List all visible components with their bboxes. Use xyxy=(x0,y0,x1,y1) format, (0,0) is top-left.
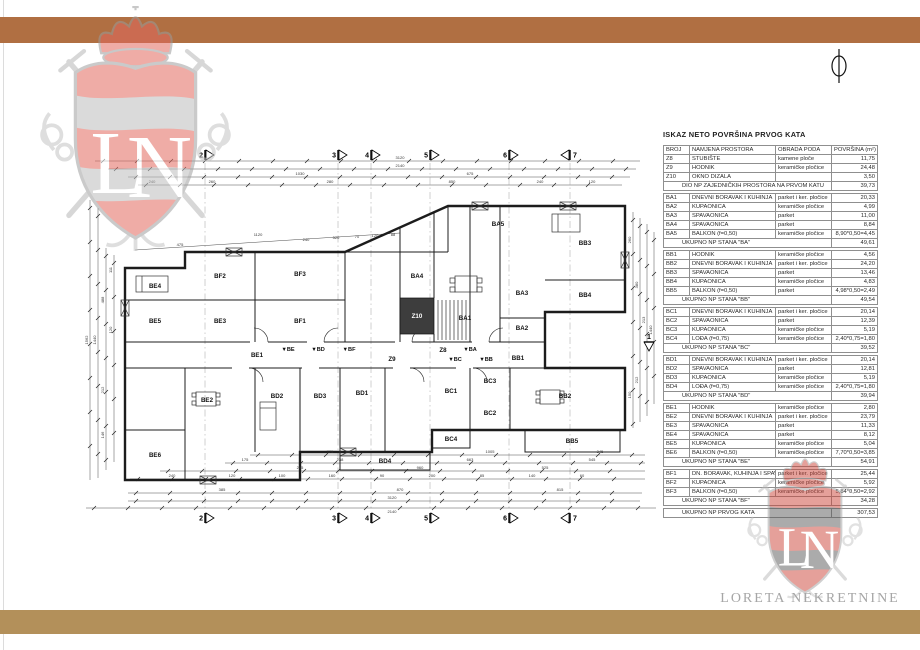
table-row: BA4SPAVAONICAparket8,84 xyxy=(664,221,878,230)
room-purpose: BALKON (f=0,50) xyxy=(690,230,776,239)
floor-finish: keramičke pločice xyxy=(776,335,832,344)
area-table: BROJNAMJENA PROSTORAOBRADA PODAPOVRŠINA … xyxy=(663,145,879,518)
room-purpose: DNEVNI BORAVAK I KUHINJA xyxy=(690,308,776,317)
total-label: UKUPNO NP PRVOG KATA xyxy=(664,509,832,518)
table-row: BE3SPAVAONICAparket11,33 xyxy=(664,422,878,431)
floor-finish: keramičke pločice xyxy=(776,449,832,458)
room-label-be5: BE5 xyxy=(149,318,162,325)
floor-finish: keramičke pločice xyxy=(776,488,832,497)
summary-value: 39,94 xyxy=(832,392,878,401)
dimension-label: 475 xyxy=(177,242,184,247)
room-area: 24,48 xyxy=(832,164,878,173)
table-row: Z9HODNIKkeramičke pločice24,48 xyxy=(664,164,878,173)
room-purpose: HODNIK xyxy=(690,164,776,173)
grid-marker: 5 xyxy=(424,513,439,523)
dimension-label: 140 xyxy=(529,473,536,478)
room-purpose: BALKON (f=0,50) xyxy=(690,449,776,458)
room-purpose: DNEVNI BORAVAK I KUHINJA xyxy=(690,356,776,365)
room-purpose: SPAVAONICA xyxy=(690,269,776,278)
room-code: BD2 xyxy=(664,365,690,374)
area-table-group: UKUPNO NP PRVOG KATA307,53 xyxy=(663,508,878,518)
room-area: 5,92 xyxy=(832,479,878,488)
table-row: BB4KUPAONICAkeramičke pločice4,83 xyxy=(664,278,878,287)
dimension-label: 85 xyxy=(480,473,485,478)
room-purpose: DNEVNI BORAVAK I KUHINJA xyxy=(690,260,776,269)
room-label-bc2: BC2 xyxy=(484,410,497,417)
grid-marker-label: 2 xyxy=(199,153,203,160)
dimension-label: 240 xyxy=(303,237,310,242)
north-arrow-icon xyxy=(826,48,852,84)
total-value: 307,53 xyxy=(832,509,878,518)
floor-finish: parket xyxy=(776,221,832,230)
dimension-label: 100 xyxy=(279,473,286,478)
dimension-label: 111 xyxy=(108,266,113,273)
room-purpose: OKNO DIZALA xyxy=(690,173,776,182)
room-code: BB1 xyxy=(664,251,690,260)
room-area: 13,46 xyxy=(832,269,878,278)
room-label-be6: BE6 xyxy=(149,452,162,459)
grid-marker: 5 xyxy=(424,150,439,160)
room-purpose: SPAVAONICA xyxy=(690,212,776,221)
floor-finish: parket i ker. pločice xyxy=(776,470,832,479)
table-row: BB3SPAVAONICAparket13,46 xyxy=(664,269,878,278)
room-code: BA3 xyxy=(664,212,690,221)
room-purpose: DNEVNI BORAVAK I KUHINJA xyxy=(690,194,776,203)
floor-finish: parket xyxy=(776,317,832,326)
room-code: BB3 xyxy=(664,269,690,278)
floor-finish: parket xyxy=(776,212,832,221)
room-area: 23,79 xyxy=(832,413,878,422)
room-label-bf2: BF2 xyxy=(214,273,226,280)
room-label-bc3: BC3 xyxy=(484,378,497,385)
room-code: BE5 xyxy=(664,440,690,449)
area-table-section: ISKAZ NETO POVRŠINA PRVOG KATA BROJNAMJE… xyxy=(663,130,879,520)
room-label-bb3: BB3 xyxy=(579,240,592,247)
room-code: BA2 xyxy=(664,203,690,212)
area-table-group: BF1DN. BORAVAK, KUHINJA I SPAVAONICApark… xyxy=(663,469,878,506)
room-code: BF1 xyxy=(664,470,690,479)
dimension-label: 70 xyxy=(355,234,360,239)
room-area: 4,98*0,50=2,49 xyxy=(832,287,878,296)
floor-finish: parket i ker. pločice xyxy=(776,356,832,365)
room-code: BE1 xyxy=(664,404,690,413)
dimension-label: 295 xyxy=(297,465,304,470)
dimension-label: 488 xyxy=(100,296,105,303)
floor-finish: parket xyxy=(776,365,832,374)
table-row: BD1DNEVNI BORAVAK I KUHINJAparket i ker.… xyxy=(664,356,878,365)
dimension-label: 1030 xyxy=(296,171,306,176)
floor-finish: parket xyxy=(776,431,832,440)
floor-finish: parket i ker. pločice xyxy=(776,413,832,422)
column-header: BROJ xyxy=(664,146,690,155)
room-code: Z10 xyxy=(664,173,690,182)
room-area: 2,80 xyxy=(832,404,878,413)
dimension-label: 1120 xyxy=(254,232,263,237)
unit-entrance-label-bd: ▼BD xyxy=(311,347,325,353)
company-name: LORETA NEKRETNINE xyxy=(710,591,910,607)
grid-marker-label: 6 xyxy=(503,153,507,160)
dimension-label: 280 xyxy=(327,179,334,184)
dimension-label: 960 xyxy=(417,465,424,470)
table-row: Z10OKNO DIZALA3,50 xyxy=(664,173,878,182)
table-row: BF2KUPAONICAkeramičke pločice5,92 xyxy=(664,479,878,488)
grid-marker: 6 xyxy=(503,513,518,523)
dimension-label: 2140 xyxy=(396,163,406,168)
room-purpose: SPAVAONICA xyxy=(690,431,776,440)
room-code: BE2 xyxy=(664,413,690,422)
table-row: BE5KUPAONICAkeramičke pločice5,04 xyxy=(664,440,878,449)
area-table-group: BROJNAMJENA PROSTORAOBRADA PODAPOVRŠINA … xyxy=(663,145,878,191)
column-header: OBRADA PODA xyxy=(776,146,832,155)
room-code: BD1 xyxy=(664,356,690,365)
room-label-bc1: BC1 xyxy=(445,388,458,395)
room-label-z9: Z9 xyxy=(388,356,396,363)
table-row: BE4SPAVAONICAparket8,12 xyxy=(664,431,878,440)
dimension-label: 1440 xyxy=(92,335,97,345)
room-label-be4: BE4 xyxy=(149,283,162,290)
unit-entrance-label-bb: ▼BB xyxy=(479,357,493,363)
dimension-label: 1562 xyxy=(84,335,89,345)
room-area: 5,84*0,50=2,92 xyxy=(832,488,878,497)
room-code: BF2 xyxy=(664,479,690,488)
table-row: BC3KUPAONICAkeramičke pločice5,19 xyxy=(664,326,878,335)
room-label-bb4: BB4 xyxy=(579,292,592,299)
room-code: BE4 xyxy=(664,431,690,440)
dimension-label: 212 xyxy=(634,376,639,383)
dimension-label: 3120 xyxy=(396,155,406,160)
floor-finish: keramičke pločice xyxy=(776,251,832,260)
room-label-ba1: BA1 xyxy=(459,315,472,322)
dimension-label: 1005 xyxy=(486,449,496,454)
dimension-label: 675 xyxy=(467,171,474,176)
dimension-labels: 3120214010306752402602808502401204751120… xyxy=(84,155,653,514)
table-title: ISKAZ NETO POVRŠINA PRVOG KATA xyxy=(663,130,879,139)
floor-finish: keramičke pločice xyxy=(776,278,832,287)
room-code: BD3 xyxy=(664,374,690,383)
photo-edge-line xyxy=(3,0,4,650)
room-code: BD4 xyxy=(664,383,690,392)
room-area: 4,99 xyxy=(832,203,878,212)
grid-marker-label: 3 xyxy=(332,516,336,523)
floor-finish: parket i ker. pločice xyxy=(776,308,832,317)
unit-entrance-label-be: ▼BE xyxy=(281,347,295,353)
room-area: 11,33 xyxy=(832,422,878,431)
grid-marker: 3 xyxy=(332,513,347,523)
summary-label: UKUPNO NP STANA "BB" xyxy=(664,296,832,305)
summary-row: UKUPNO NP STANA "BF"34,28 xyxy=(664,497,878,506)
room-label-z8: Z8 xyxy=(439,347,447,354)
room-code: BC3 xyxy=(664,326,690,335)
dimension-label: 815 xyxy=(557,487,564,492)
room-label-ba5: BA5 xyxy=(492,221,505,228)
room-area: 4,83 xyxy=(832,278,878,287)
grid-marker: 4 xyxy=(365,513,380,523)
grid-marker: 7 xyxy=(561,150,577,160)
area-table-group: BD1DNEVNI BORAVAK I KUHINJAparket i ker.… xyxy=(663,355,878,401)
room-area: 8,12 xyxy=(832,431,878,440)
dimension-label: 240 xyxy=(149,179,156,184)
dimension-label: 240 xyxy=(169,473,176,478)
room-purpose: KUPAONICA xyxy=(690,374,776,383)
room-label-bb1: BB1 xyxy=(512,355,525,362)
room-code: BE3 xyxy=(664,422,690,431)
grid-marker-label: 6 xyxy=(503,516,507,523)
summary-value: 54,91 xyxy=(832,458,878,467)
grid-marker-label: 4 xyxy=(365,516,369,523)
grid-marker-label: 3 xyxy=(332,153,336,160)
room-label-bf3: BF3 xyxy=(294,271,306,278)
dimension-label: 160 xyxy=(329,473,336,478)
dimension-label: 775 xyxy=(327,449,334,454)
summary-value: 49,54 xyxy=(832,296,878,305)
summary-label: UKUPNO NP STANA "BD" xyxy=(664,392,832,401)
room-code: Z9 xyxy=(664,164,690,173)
room-area: 24,20 xyxy=(832,260,878,269)
room-purpose: BALKON (f=0,50) xyxy=(690,287,776,296)
building-walls xyxy=(125,206,625,480)
room-purpose: KUPAONICA xyxy=(690,326,776,335)
summary-value: 39,73 xyxy=(832,182,878,191)
summary-row: UKUPNO NP STANA "BB"49,54 xyxy=(664,296,878,305)
room-area: 20,14 xyxy=(832,308,878,317)
room-code: Z8 xyxy=(664,155,690,164)
room-code: BB4 xyxy=(664,278,690,287)
floor-finish: keramičke pločice xyxy=(776,164,832,173)
summary-label: UKUPNO NP STANA "BF" xyxy=(664,497,832,506)
table-row: BA3SPAVAONICAparket11,00 xyxy=(664,212,878,221)
room-label-be2: BE2 xyxy=(201,397,214,404)
room-purpose: HODNIK xyxy=(690,251,776,260)
table-row: BA5BALKON (f=0,50)keramičke pločice8,90*… xyxy=(664,230,878,239)
floor-finish: keramičke pločice xyxy=(776,326,832,335)
room-area: 11,00 xyxy=(832,212,878,221)
room-label-bd2: BD2 xyxy=(271,393,284,400)
grid-marker-label: 5 xyxy=(424,153,428,160)
room-area: 2,40*0,75=1,80 xyxy=(832,383,878,392)
table-row: BA2KUPAONICAkeramičke pločice4,99 xyxy=(664,203,878,212)
room-code: BA5 xyxy=(664,230,690,239)
table-row: BD3KUPAONICAkeramičke pločice5,19 xyxy=(664,374,878,383)
table-row: BD4LOĐA (f=0,75)keramičke pločice2,40*0,… xyxy=(664,383,878,392)
grid-marker-label: 7 xyxy=(573,516,577,523)
table-row: BC2SPAVAONICAparket12,39 xyxy=(664,317,878,326)
room-area: 20,33 xyxy=(832,194,878,203)
room-label-bd3: BD3 xyxy=(314,393,327,400)
dimension-label: 120 xyxy=(589,179,596,184)
grid-marker-label: 5 xyxy=(424,516,428,523)
room-purpose: LOĐA (f=0,75) xyxy=(690,335,776,344)
unit-entrance-label-bc: ▼BC xyxy=(448,357,462,363)
dimension-label: 120 xyxy=(108,326,113,333)
dimension-label: 345 xyxy=(597,449,604,454)
area-table-group: BA1DNEVNI BORAVAK I KUHINJAparket i ker.… xyxy=(663,193,878,248)
room-label-bf1: BF1 xyxy=(294,318,306,325)
floor-finish: keramičke pločice xyxy=(776,404,832,413)
unit-entrance-label-ba: ▼BA xyxy=(463,347,477,353)
dimension-label: 120 xyxy=(372,233,379,238)
unit-entrance-label-bf: ▼BF xyxy=(343,347,357,353)
dimension-label: 260 xyxy=(627,236,632,243)
dimension-label: 88 xyxy=(391,232,396,237)
room-area: 3,50 xyxy=(832,173,878,182)
table-row: BF3BALKON (f=0,50)keramičke pločice5,84*… xyxy=(664,488,878,497)
room-area: 5,19 xyxy=(832,326,878,335)
room-labels: BE4BE5BE3BF2BF3BF1BA5BA4BA1BA3BA2Z10Z8Z9… xyxy=(149,221,592,465)
room-code: BE6 xyxy=(664,449,690,458)
table-row: Z8STUBIŠTEkamene ploče11,75 xyxy=(664,155,878,164)
grid-marker-label: 2 xyxy=(199,516,203,523)
table-row: BE6BALKON (f=0,50)keramičke pločice7,70*… xyxy=(664,449,878,458)
grid-marker: 4 xyxy=(365,150,380,160)
summary-label: DIO NP ZAJEDNIČKIH PROSTORA NA PRVOM KAT… xyxy=(664,182,832,191)
header-row: BROJNAMJENA PROSTORAOBRADA PODAPOVRŠINA … xyxy=(664,146,878,155)
room-purpose: KUPAONICA xyxy=(690,278,776,287)
grid-marker: 6 xyxy=(503,150,518,160)
room-label-bd1: BD1 xyxy=(356,390,369,397)
summary-label: UKUPNO NP STANA "BE" xyxy=(664,458,832,467)
grid-marker-label: 4 xyxy=(365,153,369,160)
summary-value: 49,61 xyxy=(832,239,878,248)
summary-value: 34,28 xyxy=(832,497,878,506)
room-area: 4,56 xyxy=(832,251,878,260)
grid-marker: 3 xyxy=(332,150,347,160)
plan-fixtures xyxy=(121,202,629,484)
grid-marker-label: 7 xyxy=(573,153,577,160)
dimension-label: 545 xyxy=(589,457,596,462)
room-code: BA4 xyxy=(664,221,690,230)
floor-finish: parket i ker. pločice xyxy=(776,260,832,269)
dimension-label: 1440 xyxy=(648,325,653,335)
floor-finish: parket xyxy=(776,422,832,431)
room-area: 20,14 xyxy=(832,356,878,365)
dimension-label: 870 xyxy=(397,487,404,492)
room-area: 5,19 xyxy=(832,374,878,383)
table-row: BD2SPAVAONICAparket12,81 xyxy=(664,365,878,374)
grid-marker: 1 xyxy=(644,334,654,351)
room-purpose: KUPAONICA xyxy=(690,479,776,488)
room-label-z10: Z10 xyxy=(412,313,423,320)
room-code: BF3 xyxy=(664,488,690,497)
grid-marker: 2 xyxy=(199,150,214,160)
summary-row: UKUPNO NP STANA "BD"39,94 xyxy=(664,392,878,401)
area-table-group: BB1HODNIKkeramičke pločice4,56BB2DNEVNI … xyxy=(663,250,878,305)
decorative-top-bar xyxy=(0,17,920,43)
table-row: BB5BALKON (f=0,50)parket4,98*0,50=2,49 xyxy=(664,287,878,296)
dimension-label: 146 xyxy=(100,431,105,438)
dimension-label: 850 xyxy=(449,179,456,184)
column-header: POVRŠINA (m²) xyxy=(832,146,878,155)
dimension-label: 525 xyxy=(542,465,549,470)
room-area: 8,90*0,50=4,45 xyxy=(832,230,878,239)
dimension-label: 120 xyxy=(229,473,236,478)
floor-finish: keramičke pločice xyxy=(776,230,832,239)
room-label-be3: BE3 xyxy=(214,318,227,325)
room-purpose: HODNIK xyxy=(690,404,776,413)
table-row: BE1HODNIKkeramičke pločice2,80 xyxy=(664,404,878,413)
dimension-label: 3120 xyxy=(388,495,398,500)
floor-finish: keramičke pločice xyxy=(776,479,832,488)
summary-row: DIO NP ZAJEDNIČKIH PROSTORA NA PRVOM KAT… xyxy=(664,182,878,191)
room-label-ba3: BA3 xyxy=(516,290,529,297)
floor-finish: keramičke pločice xyxy=(776,374,832,383)
dimension-label: 213 xyxy=(641,316,646,323)
floor-finish xyxy=(776,173,832,182)
column-header: NAMJENA PROSTORA xyxy=(690,146,776,155)
room-purpose: SPAVAONICA xyxy=(690,317,776,326)
room-label-bb2: BB2 xyxy=(559,393,572,400)
room-area: 12,81 xyxy=(832,365,878,374)
room-purpose: KUPAONICA xyxy=(690,203,776,212)
table-row: BB1HODNIKkeramičke pločice4,56 xyxy=(664,251,878,260)
room-code: BC4 xyxy=(664,335,690,344)
room-purpose: SPAVAONICA xyxy=(690,221,776,230)
dimension-label: 260 xyxy=(209,179,216,184)
room-code: BC2 xyxy=(664,317,690,326)
floor-finish: parket xyxy=(776,269,832,278)
area-table-group: BC1DNEVNI BORAVAK I KUHINJAparket i ker.… xyxy=(663,307,878,353)
dimension-label: 380 xyxy=(634,281,639,288)
room-purpose: SPAVAONICA xyxy=(690,365,776,374)
room-area: 5,04 xyxy=(832,440,878,449)
room-purpose: DN. BORAVAK, KUHINJA I SPAVAONICA xyxy=(690,470,776,479)
table-row: BF1DN. BORAVAK, KUHINJA I SPAVAONICApark… xyxy=(664,470,878,479)
dimension-label: 60 xyxy=(580,473,585,478)
grid-marker-label: 1 xyxy=(647,334,651,341)
table-row: BB2DNEVNI BORAVAK I KUHINJAparket i ker.… xyxy=(664,260,878,269)
summary-label: UKUPNO NP STANA "BC" xyxy=(664,344,832,353)
table-row: BA1DNEVNI BORAVAK I KUHINJAparket i ker.… xyxy=(664,194,878,203)
dimension-label: 175 xyxy=(242,457,249,462)
room-purpose: SPAVAONICA xyxy=(690,422,776,431)
room-label-be1: BE1 xyxy=(251,352,264,359)
summary-value: 39,52 xyxy=(832,344,878,353)
table-row: BE2DNEVNI BORAVAK I KUHINJAparket i ker.… xyxy=(664,413,878,422)
room-label-bb5: BB5 xyxy=(566,438,579,445)
room-code: BB5 xyxy=(664,287,690,296)
room-code: BB2 xyxy=(664,260,690,269)
dimension-label: 200 xyxy=(429,473,436,478)
table-row: BC1DNEVNI BORAVAK I KUHINJAparket i ker.… xyxy=(664,308,878,317)
summary-row: UKUPNO NP STANA "BC"39,52 xyxy=(664,344,878,353)
room-code: BA1 xyxy=(664,194,690,203)
dimension-label: 150 xyxy=(627,391,632,398)
table-row: BC4LOĐA (f=0,75)keramičke pločice2,40*0,… xyxy=(664,335,878,344)
area-table-group: BE1HODNIKkeramičke pločice2,80BE2DNEVNI … xyxy=(663,403,878,467)
room-purpose: STUBIŠTE xyxy=(690,155,776,164)
room-area: 11,75 xyxy=(832,155,878,164)
room-label-bd4: BD4 xyxy=(379,458,392,465)
scanned-floor-plan-page: L N xyxy=(0,0,920,650)
decorative-bottom-bar xyxy=(0,610,920,634)
floor-finish: parket i ker. pločice xyxy=(776,194,832,203)
room-label-bc4: BC4 xyxy=(445,436,458,443)
room-area: 25,44 xyxy=(832,470,878,479)
room-code: BC1 xyxy=(664,308,690,317)
floor-finish: keramičke pločice xyxy=(776,203,832,212)
room-label-ba4: BA4 xyxy=(411,273,424,280)
dimension-label: 663 xyxy=(467,457,474,462)
floor-finish: keramičke pločice xyxy=(776,440,832,449)
room-area: 8,84 xyxy=(832,221,878,230)
room-area: 7,70*0,50=3,85 xyxy=(832,449,878,458)
floor-plan-drawing: 3120214010306752402602808502401204751120… xyxy=(82,143,662,535)
dimension-label: 385 xyxy=(219,487,226,492)
grid-marker: 7 xyxy=(561,513,577,523)
room-purpose: DNEVNI BORAVAK I KUHINJA xyxy=(690,413,776,422)
floor-finish: parket xyxy=(776,287,832,296)
room-purpose: BALKON (f=0,50) xyxy=(690,488,776,497)
summary-row: UKUPNO NP STANA "BA"49,61 xyxy=(664,239,878,248)
